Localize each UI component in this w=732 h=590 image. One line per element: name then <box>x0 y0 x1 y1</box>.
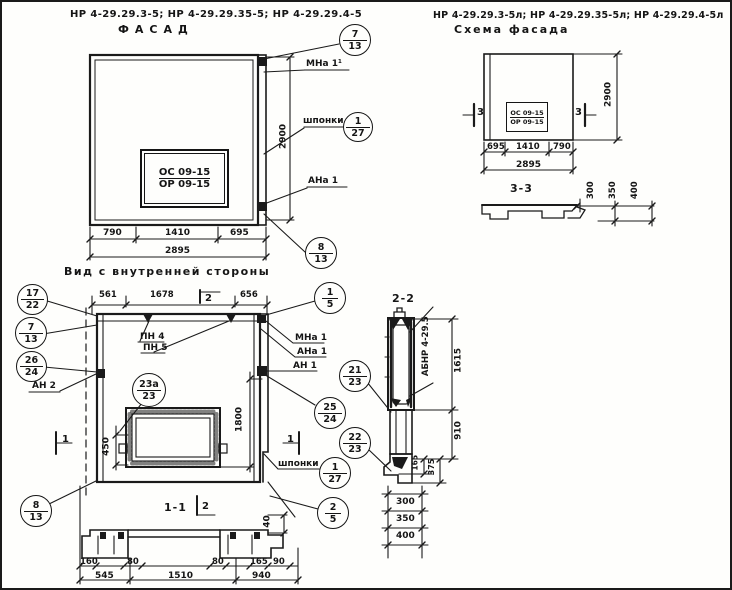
schema-codes: НР 4-29.29.3-5л; НР 4-29.29.35-5л; НР 4-… <box>433 11 723 21</box>
schema-section-mark-left: 3 <box>477 108 484 118</box>
inner-section-2-mark-top: 2 <box>205 294 212 304</box>
schema-dim-790: 790 <box>553 143 571 152</box>
callout-7-13: 7 13 <box>15 317 47 349</box>
callout-26-24: 26 24 <box>16 351 47 382</box>
inner-dim-1678: 1678 <box>150 291 174 300</box>
facade-dim-695: 695 <box>230 229 249 238</box>
s22-dim-165: 165 <box>411 449 419 477</box>
facade-dim-2900: 2900 <box>280 117 289 157</box>
facade-codes: НР 4-29.29.3-5; НР 4-29.29.35-5; НР 4-29… <box>70 10 362 20</box>
facade-dim-790: 790 <box>103 229 122 238</box>
s22-dim-1615: 1615 <box>455 341 464 381</box>
facade-callout-1-27: 1 27 <box>343 112 373 142</box>
schema-dim-2895: 2895 <box>516 161 541 170</box>
schema-title: Схема фасада <box>454 24 569 35</box>
schema-panel-lines <box>463 51 655 226</box>
facade-callout-8-13: 8 13 <box>305 237 337 269</box>
facade-anchor-mna-label: МНа 1¹ <box>306 60 342 69</box>
schema-profile-dim-350: 350 <box>609 170 618 210</box>
facade-shponki-label: шпонки <box>303 117 344 126</box>
drawing-sheet: НР 4-29.29.3-5; НР 4-29.29.35-5; НР 4-29… <box>0 0 732 590</box>
inner-label-mna1: МНа 1 <box>295 334 327 343</box>
callout-2-5: 2 5 <box>317 497 349 529</box>
facade-title: ФАСАД <box>118 24 194 35</box>
callout-8-13: 8 13 <box>20 495 52 527</box>
s22-dim-375: 375 <box>428 449 436 485</box>
s11-dim-80a: 80 <box>127 558 139 567</box>
inner-dim-561: 561 <box>99 291 117 300</box>
schema-dim-1410: 1410 <box>516 143 540 152</box>
facade-dim-1410: 1410 <box>165 229 190 238</box>
inner-label-an1: АН 1 <box>293 362 317 371</box>
facade-stamp: ОС 09-15 ОР 09-15 <box>140 149 229 208</box>
s11-dim-1510: 1510 <box>168 572 193 581</box>
inner-label-pn4: ПН 4 <box>140 333 164 342</box>
callout-21-23: 21 23 <box>339 360 371 392</box>
s22-dim-910: 910 <box>455 411 464 451</box>
schema-dim-2900: 2900 <box>605 75 614 115</box>
s11-dim-160: 160 <box>80 558 98 567</box>
inner-label-an2: АН 2 <box>32 382 56 391</box>
inner-section-1-mark-right: 1 <box>287 435 294 445</box>
callout-1-5: 1 5 <box>314 282 346 314</box>
inner-dim-1800: 1800 <box>236 400 245 440</box>
inner-view-title: Вид с внутренней стороны <box>64 266 270 277</box>
schema-section-3-3-title: 3-3 <box>510 183 533 194</box>
s11-dim-165: 165 <box>250 558 268 567</box>
inner-label-shponki: шпонки <box>278 460 319 469</box>
s11-dim-545: 545 <box>95 572 114 581</box>
schema-stamp: ОС 09-15 ОР 09-15 <box>506 102 548 132</box>
facade-dim-2895: 2895 <box>165 247 190 256</box>
s11-dim-80b: 80 <box>212 558 224 567</box>
callout-23a-23: 23а 23 <box>132 373 166 407</box>
schema-profile-dim-300: 300 <box>587 170 596 210</box>
s22-dim-300: 300 <box>396 498 415 507</box>
callout-17-22: 17 22 <box>17 284 48 315</box>
schema-dim-695: 695 <box>487 143 505 152</box>
schema-section-mark-right: 3 <box>575 108 582 118</box>
s11-dim-940: 940 <box>252 572 271 581</box>
facade-anchor-ana-label: АНа 1 <box>308 177 338 186</box>
section-2-2-title: 2-2 <box>392 293 415 304</box>
inner-section-1-mark-left: 1 <box>62 435 69 445</box>
inner-label-ana1: АНа 1 <box>297 348 327 357</box>
section-1-1-title: 1-1 <box>164 502 187 513</box>
s11-dim-90: 90 <box>273 558 285 567</box>
inner-section-2-mark-bottom: 2 <box>202 502 209 512</box>
s22-part-label: АБНР 4-29.5 <box>422 306 431 386</box>
schema-profile-dim-400: 400 <box>631 170 640 210</box>
callout-22-23: 22 23 <box>339 427 371 459</box>
facade-callout-7-13: 7 13 <box>339 24 371 56</box>
inner-dim-40: 40 <box>264 508 273 536</box>
s22-dim-350: 350 <box>396 515 415 524</box>
inner-dim-656: 656 <box>240 291 258 300</box>
inner-dim-450: 450 <box>103 427 112 467</box>
callout-25-24: 25 24 <box>314 397 346 429</box>
stamp-line-2: ОР 09-15 <box>159 178 210 190</box>
inner-label-pn5: ПН 5 <box>143 344 167 353</box>
inner-view-lines <box>29 290 391 584</box>
stamp-line-1: ОС 09-15 <box>159 167 210 178</box>
callout-1-27: 1 27 <box>319 457 351 489</box>
s22-dim-400: 400 <box>396 532 415 541</box>
